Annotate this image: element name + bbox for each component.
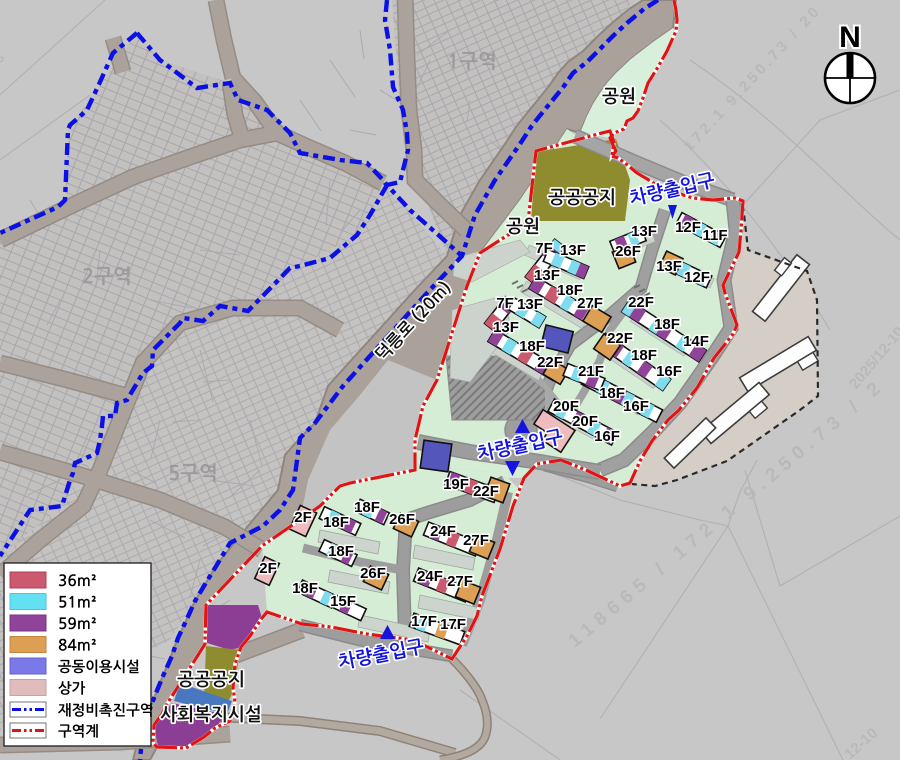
svg-text:12F: 12F [684, 269, 710, 286]
svg-text:7F: 7F [496, 295, 514, 312]
svg-text:N: N [839, 21, 861, 54]
svg-text:27F: 27F [463, 532, 489, 549]
svg-text:17F: 17F [411, 613, 437, 630]
svg-text:18F: 18F [354, 499, 380, 516]
svg-text:13F: 13F [517, 296, 543, 313]
svg-text:26F: 26F [360, 565, 386, 582]
svg-text:7F: 7F [535, 240, 553, 257]
svg-text:12F: 12F [675, 219, 701, 236]
svg-text:13F: 13F [493, 319, 519, 336]
svg-text:16F: 16F [623, 398, 649, 415]
svg-text:17F: 17F [440, 616, 466, 633]
svg-text:16F: 16F [656, 363, 682, 380]
svg-text:21F: 21F [578, 363, 604, 380]
svg-text:13F: 13F [560, 242, 586, 259]
svg-text:18F: 18F [654, 316, 680, 333]
svg-text:13F: 13F [656, 258, 682, 275]
svg-text:14F: 14F [683, 333, 709, 350]
svg-text:2F: 2F [294, 509, 312, 526]
svg-text:22F: 22F [628, 294, 654, 311]
svg-text:19F: 19F [443, 476, 469, 493]
svg-text:2F: 2F [259, 560, 277, 577]
svg-text:13F: 13F [631, 223, 657, 240]
svg-text:27F: 27F [447, 573, 473, 590]
svg-text:26F: 26F [615, 243, 641, 260]
svg-text:22F: 22F [607, 330, 633, 347]
svg-text:22F: 22F [473, 483, 499, 500]
svg-text:27F: 27F [577, 295, 603, 312]
svg-text:18F: 18F [292, 580, 318, 597]
svg-text:18F: 18F [599, 385, 625, 402]
svg-text:15F: 15F [330, 593, 356, 610]
svg-text:18F: 18F [519, 338, 545, 355]
svg-text:18F: 18F [328, 543, 354, 560]
svg-text:18F: 18F [631, 347, 657, 364]
svg-text:24F: 24F [430, 523, 456, 540]
svg-text:16F: 16F [594, 428, 620, 445]
svg-text:18F: 18F [323, 514, 349, 531]
svg-text:26F: 26F [389, 511, 415, 528]
svg-text:22F: 22F [537, 354, 563, 371]
svg-text:11F: 11F [702, 227, 727, 244]
svg-text:24F: 24F [417, 568, 443, 585]
svg-text:13F: 13F [534, 267, 560, 284]
